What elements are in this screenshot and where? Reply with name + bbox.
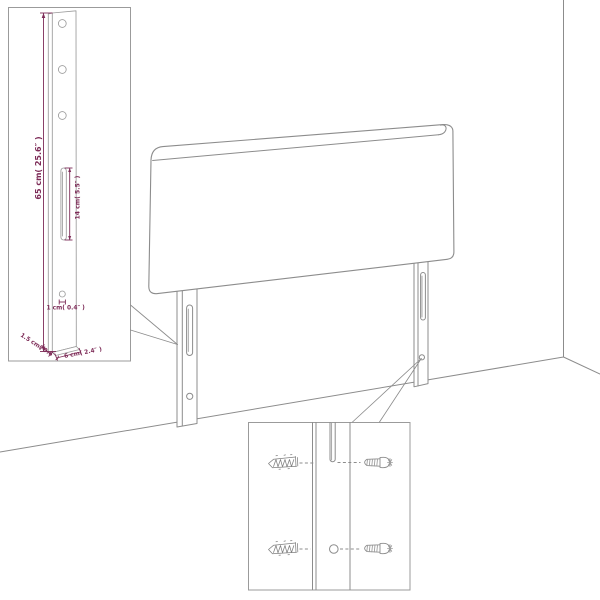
leg-inset-callout-lines	[131, 305, 178, 345]
callout-line-4	[380, 359, 422, 423]
callout-line-2	[131, 330, 178, 345]
screw-inset-border	[249, 423, 411, 591]
panel-outline	[149, 125, 454, 294]
height-dimension-label: 65 cm( 25.6″ )	[34, 136, 43, 199]
callout-line-3	[353, 359, 422, 423]
screw-head-cross	[388, 459, 393, 467]
leg-hole-2	[58, 66, 66, 74]
leg-slot	[61, 168, 66, 240]
leg-left-hole	[187, 393, 193, 399]
screw-detail-inset	[249, 423, 411, 591]
slot-dimension-label: 14 cm( 5.5″ )	[75, 175, 82, 219]
leg-right-slot	[421, 273, 426, 321]
headboard-leg-left	[177, 278, 197, 427]
leg-left-slot	[187, 305, 193, 356]
assembly-diagram-page: 65 cm( 25.6″ ) 14 cm( 5.5″ ) 1 cm( 0.4″ …	[0, 0, 600, 600]
assembly-diagram: 65 cm( 25.6″ ) 14 cm( 5.5″ ) 1 cm( 0.4″ …	[0, 0, 600, 600]
hole-dimension-label: 1 cm( 0.4″ )	[47, 306, 86, 312]
leg-bottom-hole	[59, 291, 65, 297]
leg-detail-inset: 65 cm( 25.6″ ) 14 cm( 5.5″ ) 1 cm( 0.4″ …	[9, 8, 131, 363]
headboard-panel	[149, 125, 454, 294]
leg-hole-1	[58, 20, 66, 28]
screw-head-cross	[388, 545, 393, 553]
leg-hole-3	[58, 112, 66, 120]
callout-line-1	[131, 305, 178, 345]
screw-inset-callout-lines	[353, 359, 422, 423]
floor-line-right	[564, 357, 600, 374]
leg-closeup-hole	[330, 545, 339, 554]
